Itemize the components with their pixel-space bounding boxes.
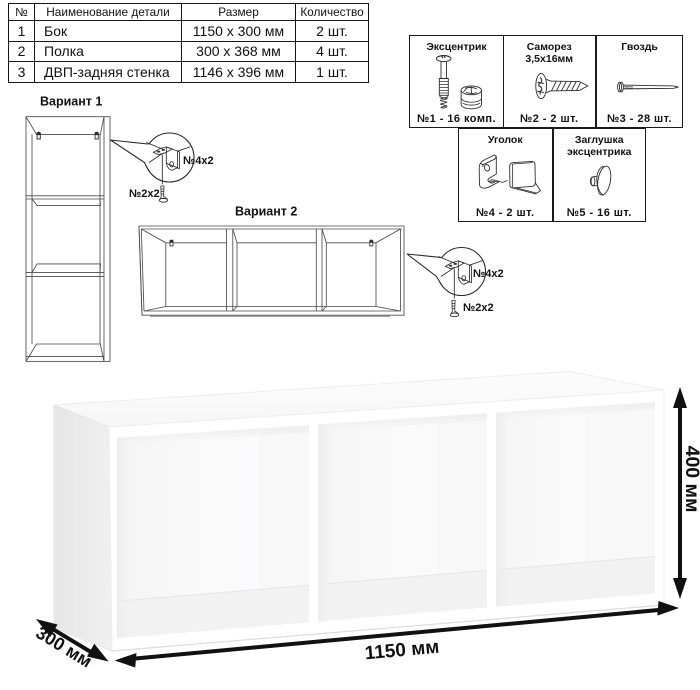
- svg-text:№2x2: №2x2: [129, 188, 160, 200]
- svg-text:№2x2: №2x2: [463, 302, 494, 314]
- svg-text:400 мм: 400 мм: [681, 446, 700, 513]
- svg-text:№4x2: №4x2: [473, 268, 504, 280]
- svg-text:Вариант 1: Вариант 1: [40, 95, 102, 109]
- svg-text:1150 мм: 1150 мм: [364, 637, 440, 665]
- svg-text:Вариант 2: Вариант 2: [235, 205, 297, 219]
- svg-text:№4x2: №4x2: [183, 155, 214, 167]
